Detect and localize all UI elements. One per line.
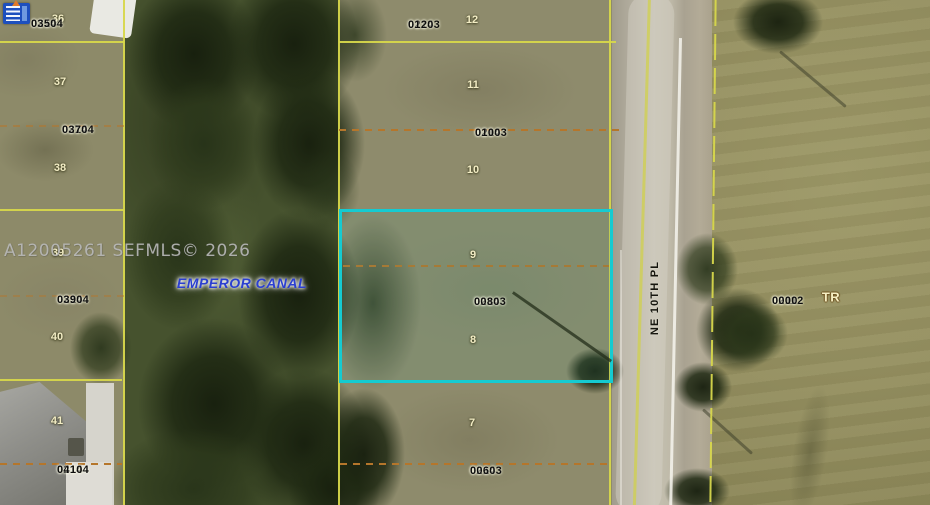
lot-number-9: 9 (470, 249, 476, 261)
yard-object (68, 438, 84, 456)
lot-number-11: 11 (467, 79, 479, 91)
lot-number-12: 12 (466, 14, 478, 26)
parcel-strap: 0080 (474, 298, 500, 308)
parcel-strap: 0100 (475, 129, 501, 139)
sefmls-logo-icon (3, 3, 30, 24)
parcel-line-horizontal (0, 209, 124, 211)
parcel-line-horizontal (0, 41, 124, 43)
road-edge-stripe-faint (620, 250, 622, 505)
parcel-strap: 0350 (31, 20, 57, 30)
lot-number-40: 40 (51, 331, 63, 343)
canal-name-label: EMPEROR CANAL (177, 275, 307, 291)
lot-number-7: 7 (469, 417, 475, 429)
parcel-line-horizontal (0, 379, 122, 381)
lot-number-38: 38 (54, 162, 66, 174)
logo-flame-icon (12, 0, 20, 6)
white-roof-top-left (89, 0, 137, 39)
parcel-strap: 0060 (470, 467, 496, 477)
parcel-strap: 0120 (408, 21, 434, 31)
parcel-strap: 0370 (62, 126, 88, 136)
logo-pane (22, 6, 27, 21)
street-name-label: NE 10TH PL (649, 261, 661, 335)
parcel-strap: 0000 (772, 297, 798, 307)
logo-stripes (6, 6, 20, 21)
parcel-strap: 0410 (57, 466, 83, 476)
lot-number-10: 10 (467, 164, 479, 176)
parcel-line-horizontal (339, 41, 616, 43)
tract-label: TR (822, 290, 840, 305)
parcel-strap: 0390 (57, 296, 83, 306)
lot-number-37: 37 (54, 76, 66, 88)
lot-number-8: 8 (470, 334, 476, 346)
palm-tree-mid (674, 362, 732, 412)
aerial-parcel-map: 36 37 38 39 40 41 12 11 10 9 8 7 TR 0214… (0, 0, 930, 505)
mls-watermark: A12005261 SEFMLS© 2026 (4, 241, 250, 261)
tree-canopy (716, 303, 788, 365)
lot-number-41: 41 (51, 415, 63, 427)
